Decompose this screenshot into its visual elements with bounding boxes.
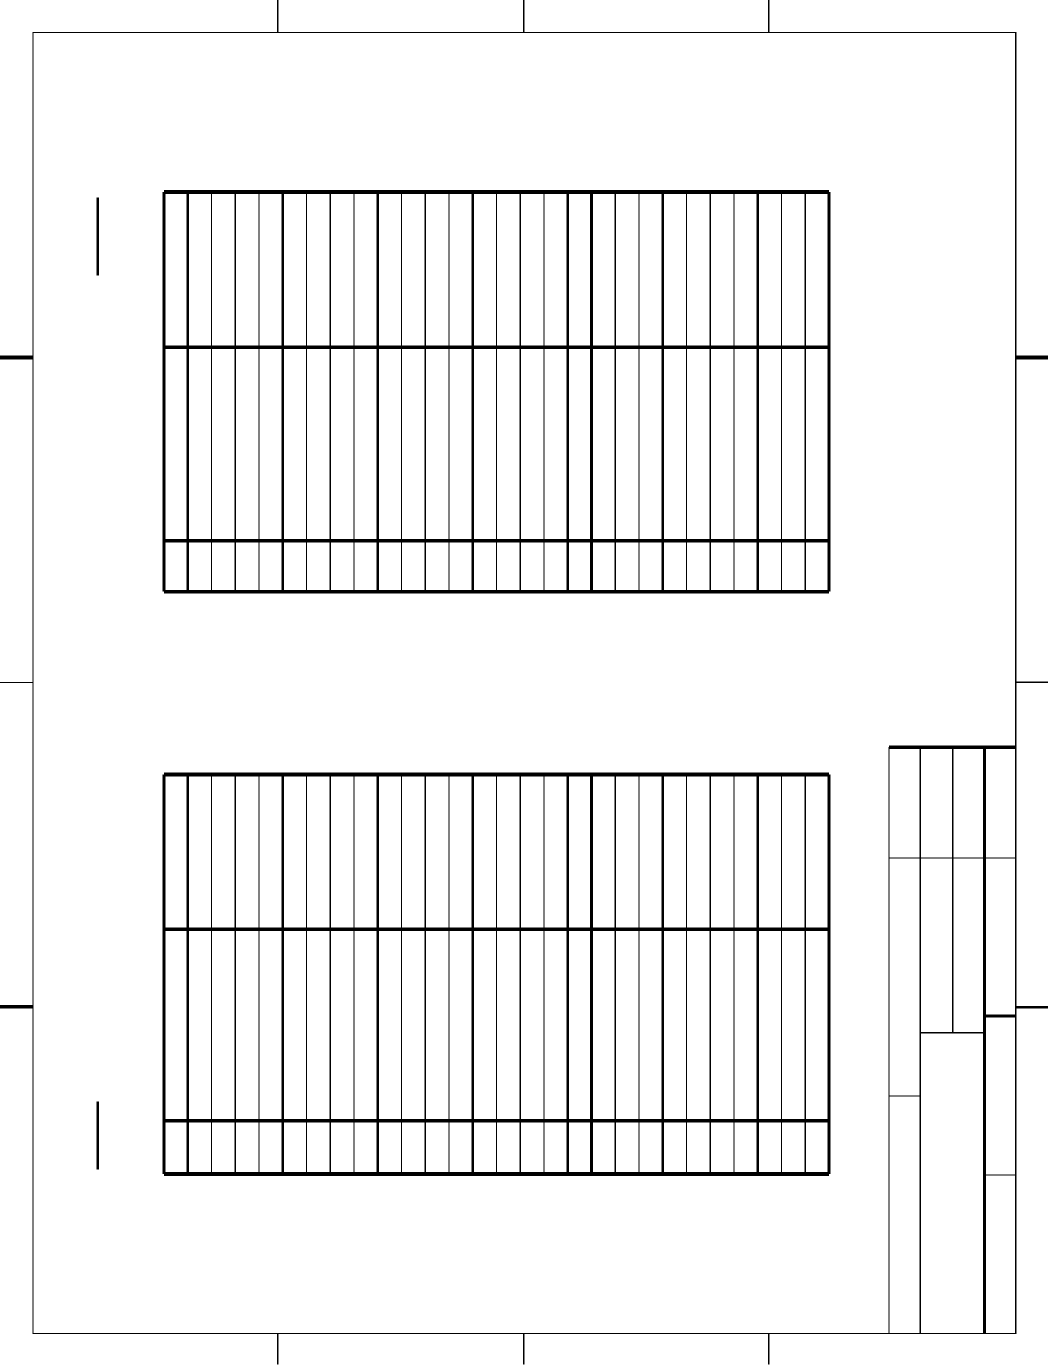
- drawing-sheet-canvas: [0, 0, 1048, 1367]
- sheet-border: [33, 33, 1016, 1334]
- drawing-sheet: [0, 0, 1048, 1367]
